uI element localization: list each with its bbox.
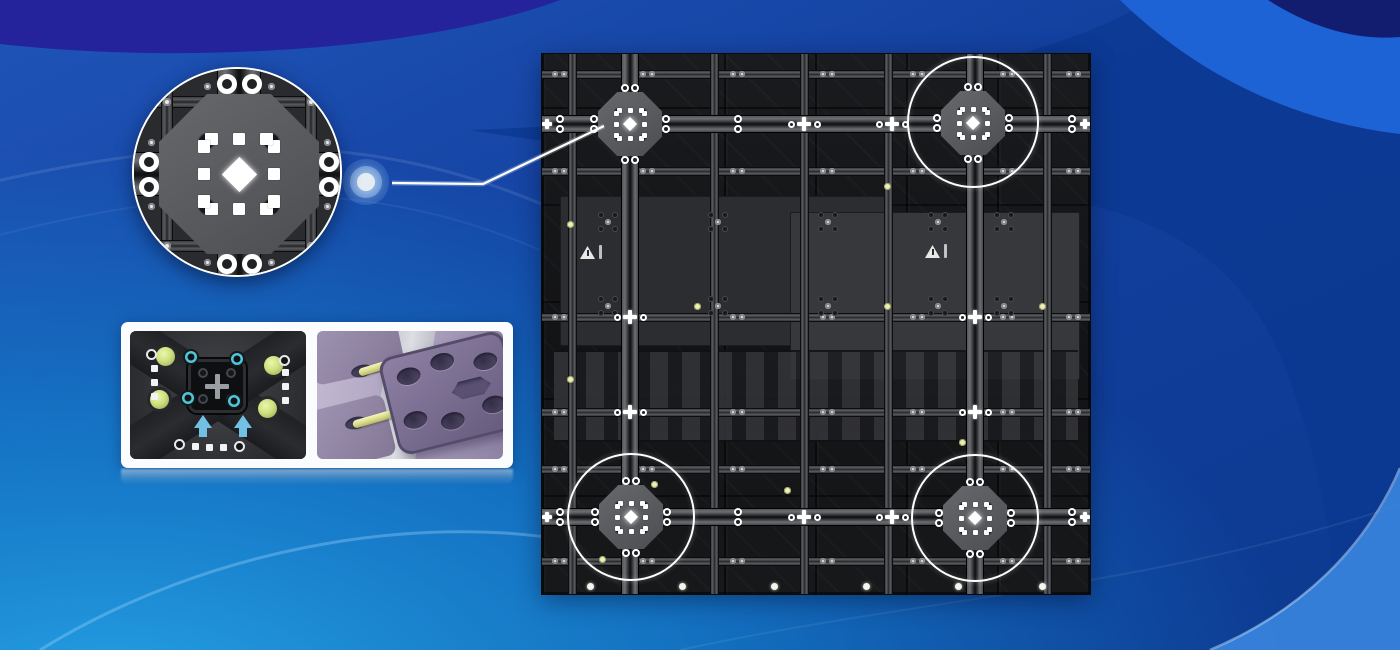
eyelet-ring: [814, 121, 821, 128]
screw-dot: [863, 583, 870, 590]
eyelet-ring: [959, 409, 966, 416]
warning-label-text: [599, 245, 602, 259]
screw-dot: [832, 212, 838, 218]
connector-tab: [639, 108, 644, 113]
screw-dot: [730, 71, 736, 77]
screw-dot: [1008, 212, 1014, 218]
screw-dot: [730, 409, 736, 415]
screw-dot: [784, 487, 791, 494]
minor-junction-cross: [802, 510, 806, 524]
up-arrow-icon: [234, 415, 252, 428]
eyelet-ring: [217, 74, 237, 94]
screw-dot: [730, 558, 736, 564]
eyelet-ring: [319, 177, 339, 197]
corner-eyelet: [234, 441, 245, 452]
screw-dot: [679, 583, 686, 590]
screw-dot: [1075, 168, 1081, 174]
screw-dot: [1000, 409, 1006, 415]
screw-dot: [832, 226, 838, 232]
screw-dot: [148, 139, 155, 146]
screw-dot: [552, 71, 558, 77]
cross-mark: [215, 374, 220, 399]
eyelet-ring: [985, 409, 992, 416]
screw-dot: [552, 168, 558, 174]
screw-dot: [994, 310, 1000, 316]
eyelet-ring: [734, 508, 742, 516]
connector-tab: [628, 108, 633, 113]
eyelet-ring: [556, 508, 564, 516]
screw-dot: [612, 212, 618, 218]
screw-dot: [1001, 303, 1007, 309]
plate-hole: [472, 350, 499, 372]
screw-dot: [640, 168, 646, 174]
eyelet-ring: [139, 177, 159, 197]
eyelet-ring: [1068, 508, 1076, 516]
screw-dot: [994, 212, 1000, 218]
eyelet-ring: [217, 254, 237, 274]
highlight-circle: [911, 454, 1039, 582]
screw-dot: [832, 296, 838, 302]
up-arrow-icon: [194, 415, 212, 428]
eyelet-ring: [734, 115, 742, 123]
detail-card: [121, 322, 513, 468]
screw-dot: [820, 71, 826, 77]
eyelet-ring: [319, 152, 339, 172]
screw-dot: [910, 314, 916, 320]
screw-dot: [1075, 71, 1081, 77]
screw-hole: [198, 368, 208, 378]
corner-eyelet: [146, 349, 157, 360]
eyelet-ring: [556, 518, 564, 526]
highlight-circle: [567, 453, 695, 581]
eyelet-ring: [621, 84, 629, 92]
connector-tab: [268, 195, 281, 208]
screw-dot: [722, 310, 728, 316]
screw-dot: [829, 466, 835, 472]
plate-hole: [402, 409, 429, 431]
screw-dot: [739, 314, 745, 320]
screw-dot: [552, 314, 558, 320]
screw-dot: [910, 168, 916, 174]
screw-dot: [567, 376, 574, 383]
screw-dot: [1039, 303, 1046, 310]
eyelet-ring: [614, 314, 621, 321]
white-tab: [282, 397, 289, 404]
eyelet-ring: [621, 156, 629, 164]
screw-hole: [226, 368, 236, 378]
screw-dot: [919, 409, 925, 415]
screw-dot: [722, 226, 728, 232]
screw-dot: [552, 409, 558, 415]
connector-tab: [642, 133, 647, 138]
edge-connector: [1083, 512, 1087, 522]
screw-dot: [1066, 466, 1072, 472]
screw-dot: [567, 221, 574, 228]
screw-dot: [771, 583, 778, 590]
screw-dot: [730, 168, 736, 174]
screw-dot: [1066, 314, 1072, 320]
screw-dot: [1075, 409, 1081, 415]
screw-dot: [739, 71, 745, 77]
screw-dot: [820, 168, 826, 174]
eyelet-ring: [631, 84, 639, 92]
edge-connector: [1083, 119, 1087, 129]
cyan-screw: [231, 353, 243, 365]
screw-dot: [739, 409, 745, 415]
screw-dot: [994, 296, 1000, 302]
led-cabinet-rear-view: [542, 54, 1090, 594]
connector-tab: [268, 168, 281, 181]
screw-dot: [694, 303, 701, 310]
lock-pin-3d-render: [317, 331, 503, 459]
white-tab: [192, 443, 199, 450]
eyelet-ring: [242, 254, 262, 274]
minor-junction-cross: [890, 510, 894, 524]
screw-dot: [739, 466, 745, 472]
plate-hole: [480, 393, 503, 415]
screw-dot: [1066, 558, 1072, 564]
screw-dot: [598, 310, 604, 316]
screw-dot: [928, 212, 934, 218]
lock-mechanism-photo: [130, 331, 306, 459]
screw-dot: [959, 439, 966, 446]
eyelet-ring: [1068, 115, 1076, 123]
minor-junction-cross: [973, 310, 977, 324]
screw-dot: [612, 296, 618, 302]
cyan-screw: [182, 392, 194, 404]
screw-dot: [324, 139, 331, 146]
connector-tab: [260, 133, 273, 146]
eyelet-ring: [814, 514, 821, 521]
screw-dot: [1008, 310, 1014, 316]
screw-dot: [587, 583, 594, 590]
screw-dot: [598, 226, 604, 232]
screw-dot: [1066, 168, 1072, 174]
screw-dot: [919, 558, 925, 564]
screw-dot: [818, 296, 824, 302]
white-tab: [151, 365, 158, 372]
screw-dot: [307, 98, 315, 106]
eyelet-ring: [139, 152, 159, 172]
connector-tab: [198, 195, 211, 208]
screw-dot: [722, 212, 728, 218]
screw-dot: [818, 310, 824, 316]
screw-dot: [561, 466, 567, 472]
eyelet-ring: [242, 74, 262, 94]
screw-dot: [1000, 314, 1006, 320]
screw-dot: [730, 314, 736, 320]
warning-label-text: [944, 244, 947, 258]
eyelet-ring: [876, 514, 883, 521]
screw-dot: [1008, 226, 1014, 232]
screw-dot: [163, 98, 171, 106]
screw-dot: [942, 212, 948, 218]
eyelet-ring: [788, 514, 795, 521]
screw-dot: [561, 71, 567, 77]
screw-dot: [561, 558, 567, 564]
screw-dot: [1009, 409, 1015, 415]
white-tab: [282, 369, 289, 376]
screw-dot: [715, 219, 721, 225]
screw-dot: [1066, 71, 1072, 77]
corner-eyelet: [279, 355, 290, 366]
screw-dot: [1075, 314, 1081, 320]
corner-eyelet: [174, 439, 185, 450]
plate-hole: [395, 365, 422, 387]
connector-tab: [614, 122, 619, 127]
screw-dot: [708, 226, 714, 232]
eyelet-ring: [734, 518, 742, 526]
minor-junction-cross: [973, 405, 977, 419]
white-tab: [220, 444, 227, 451]
screw-dot: [268, 259, 275, 266]
connector-tab: [628, 136, 633, 141]
screw-dot: [919, 466, 925, 472]
connector-tab: [198, 168, 211, 181]
screw-dot: [204, 83, 211, 90]
screw-dot: [942, 226, 948, 232]
screw-dot: [561, 314, 567, 320]
screw-dot: [825, 303, 831, 309]
white-tab: [151, 379, 158, 386]
eyelet-ring: [556, 125, 564, 133]
screw-dot: [829, 71, 835, 77]
screw-dot: [739, 168, 745, 174]
screw-dot: [612, 226, 618, 232]
screw-dot: [148, 203, 155, 210]
screw-dot: [722, 296, 728, 302]
screw-dot: [552, 558, 558, 564]
screw-dot: [928, 296, 934, 302]
eyelet-ring: [734, 125, 742, 133]
eyelet-ring: [631, 156, 639, 164]
edge-connector: [545, 512, 549, 522]
minor-junction-cross: [802, 117, 806, 131]
eyelet-ring: [614, 409, 621, 416]
screw-hole: [198, 394, 208, 404]
minor-junction-cross: [890, 117, 894, 131]
screw-dot: [708, 310, 714, 316]
connector-tab: [614, 133, 619, 138]
eyelet-ring: [590, 115, 598, 123]
screw-dot: [598, 296, 604, 302]
lime-screw: [156, 347, 175, 366]
eyelet-ring: [662, 125, 670, 133]
edge-connector: [545, 119, 549, 129]
screw-dot: [942, 296, 948, 302]
screw-dot: [561, 168, 567, 174]
connector-tab: [233, 133, 246, 146]
screw-dot: [820, 409, 826, 415]
screw-dot: [818, 226, 824, 232]
screw-dot: [598, 212, 604, 218]
cyan-screw: [228, 395, 240, 407]
screw-dot: [955, 583, 962, 590]
screw-dot: [829, 168, 835, 174]
white-tab: [206, 444, 213, 451]
screw-dot: [649, 71, 655, 77]
screw-dot: [204, 259, 211, 266]
screw-dot: [708, 212, 714, 218]
connector-tab: [642, 122, 647, 127]
screw-dot: [649, 168, 655, 174]
screw-dot: [825, 219, 831, 225]
eyelet-ring: [640, 409, 647, 416]
screw-dot: [708, 296, 714, 302]
screw-dot: [730, 466, 736, 472]
screw-dot: [910, 558, 916, 564]
screw-dot: [561, 409, 567, 415]
screw-dot: [910, 466, 916, 472]
screw-dot: [820, 558, 826, 564]
eyelet-ring: [788, 121, 795, 128]
screw-dot: [552, 466, 558, 472]
screw-dot: [935, 219, 941, 225]
screw-dot: [928, 226, 934, 232]
screw-dot: [942, 310, 948, 316]
eyelet-ring: [1068, 125, 1076, 133]
highlight-circle: [907, 56, 1039, 188]
screw-dot: [739, 558, 745, 564]
plate-hole: [428, 351, 455, 373]
minor-junction-cross: [628, 310, 632, 324]
eyelet-ring: [662, 115, 670, 123]
screw-dot: [1075, 558, 1081, 564]
screw-dot: [919, 314, 925, 320]
screw-dot: [919, 168, 925, 174]
screw-dot: [884, 183, 891, 190]
screw-dot: [1066, 409, 1072, 415]
eyelet-ring: [640, 314, 647, 321]
minor-junction-cross: [628, 405, 632, 419]
eyelet-ring: [556, 115, 564, 123]
connector-tab: [233, 203, 246, 216]
screw-dot: [268, 83, 275, 90]
eyelet-ring: [590, 125, 598, 133]
white-tab: [282, 383, 289, 390]
screw-dot: [1039, 583, 1046, 590]
eyelet-ring: [1068, 518, 1076, 526]
screw-dot: [818, 212, 824, 218]
plate-hole: [439, 410, 466, 432]
card-reflection: [121, 469, 513, 485]
screw-dot: [884, 303, 891, 310]
callout-dot: [357, 173, 375, 191]
screw-dot: [307, 242, 315, 250]
screw-dot: [910, 409, 916, 415]
screw-dot: [832, 310, 838, 316]
screw-dot: [163, 242, 171, 250]
cyan-screw: [185, 351, 197, 363]
eyelet-ring: [902, 514, 909, 521]
screw-dot: [935, 303, 941, 309]
screw-dot: [820, 466, 826, 472]
eyelet-ring: [959, 314, 966, 321]
product-graphic: [0, 0, 1400, 650]
screw-dot: [324, 203, 331, 210]
screw-dot: [715, 303, 721, 309]
eyelet-ring: [876, 121, 883, 128]
screw-dot: [994, 226, 1000, 232]
screw-dot: [605, 219, 611, 225]
screw-dot: [928, 310, 934, 316]
screw-dot: [829, 409, 835, 415]
screw-dot: [1001, 219, 1007, 225]
screw-dot: [910, 71, 916, 77]
screw-dot: [1075, 466, 1081, 472]
zoom-inset-circle: [132, 67, 342, 277]
connector-tab: [198, 140, 211, 153]
eyelet-ring: [985, 314, 992, 321]
screw-dot: [605, 303, 611, 309]
white-tab: [151, 393, 158, 400]
lime-screw: [258, 399, 277, 418]
screw-dot: [640, 71, 646, 77]
connector-tab: [614, 111, 619, 116]
screw-dot: [829, 558, 835, 564]
screw-dot: [1008, 296, 1014, 302]
